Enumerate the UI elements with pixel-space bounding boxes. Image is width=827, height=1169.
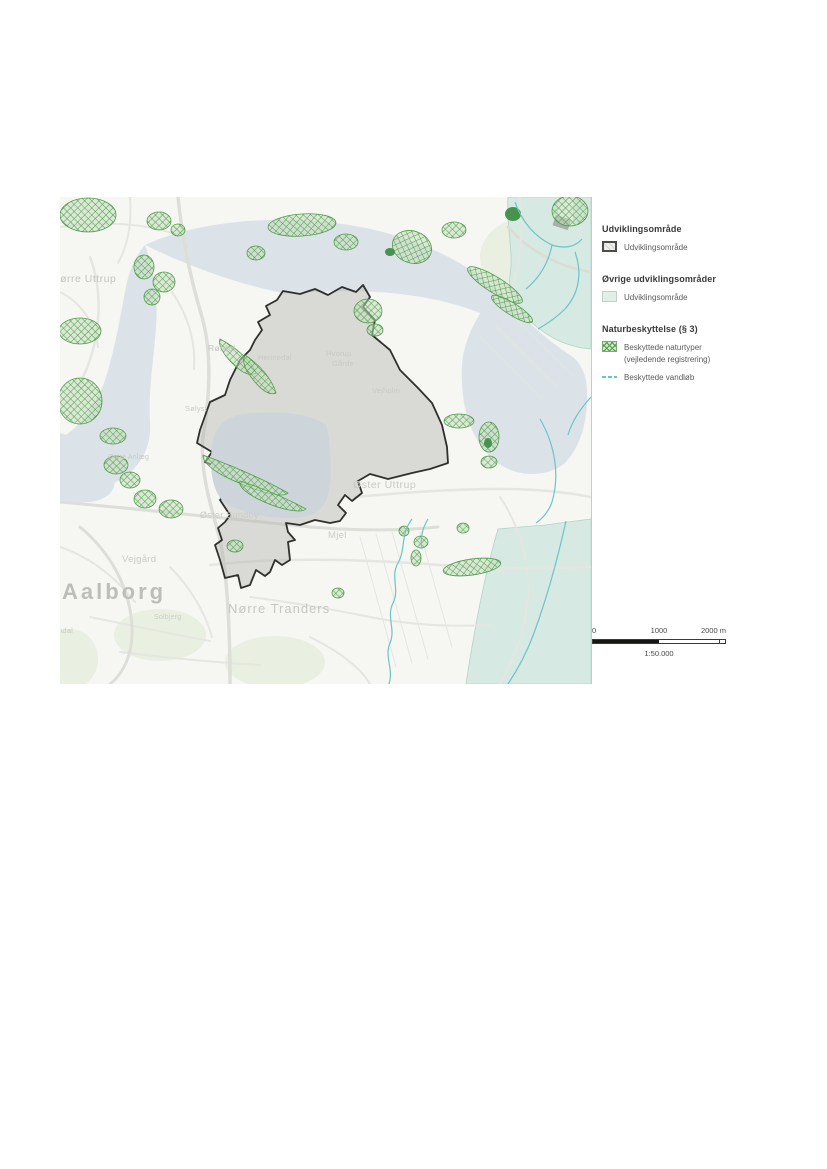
scale-bar: 010002000 m 1:50.000: [592, 626, 726, 658]
legend-section-title: Naturbeskyttelse (§ 3): [602, 324, 817, 334]
legend-item: Udviklingsområde: [602, 241, 817, 253]
legend-section: Naturbeskyttelse (§ 3)Beskyttede naturty…: [602, 324, 817, 383]
legend-item-label: Beskyttede vandløb: [624, 371, 694, 383]
scale-bar-endtick: [719, 640, 725, 643]
scale-bar-graphic: [592, 639, 726, 644]
scale-tick-label: 1000: [651, 626, 668, 635]
legend-section: Øvrige udviklingsområderUdviklingsområde: [602, 274, 817, 303]
scale-bar-labels: 010002000 m: [592, 626, 726, 636]
legend-item-label: Udviklingsområde: [624, 291, 688, 303]
legend-swatch-beskyttede-vandloeb: [602, 371, 617, 382]
scale-tick-label: 0: [592, 626, 596, 635]
legend-section-title: Udviklingsområde: [602, 224, 817, 234]
legend-item: Beskyttede naturtyper(vejledende registr…: [602, 341, 817, 364]
legend-section-title: Øvrige udviklingsområder: [602, 274, 817, 284]
scale-ratio: 1:50.000: [592, 649, 726, 658]
scale-bar-fill: [593, 640, 659, 643]
legend-item-label: Beskyttede naturtyper(vejledende registr…: [624, 341, 710, 364]
legend-swatch-oevrige-udviklingsomraade: [602, 291, 617, 302]
legend: UdviklingsområdeUdviklingsområdeØvrige u…: [602, 224, 817, 404]
legend-swatch-beskyttede-naturtyper: [602, 341, 617, 352]
legend-swatch-udviklingsomraade: [602, 241, 617, 252]
map-canvas: [60, 197, 591, 684]
legend-section: UdviklingsområdeUdviklingsområde: [602, 224, 817, 253]
legend-item-label: Udviklingsområde: [624, 241, 688, 253]
scale-tick-label: 2000 m: [701, 626, 726, 635]
legend-item: Beskyttede vandløb: [602, 371, 817, 383]
page: { "colors": { "water": "#dce3e8", "quarr…: [0, 0, 827, 1169]
map-figure: AalborgNørre TrandersNørre UttrupØster U…: [60, 197, 592, 684]
legend-item: Udviklingsområde: [602, 291, 817, 303]
